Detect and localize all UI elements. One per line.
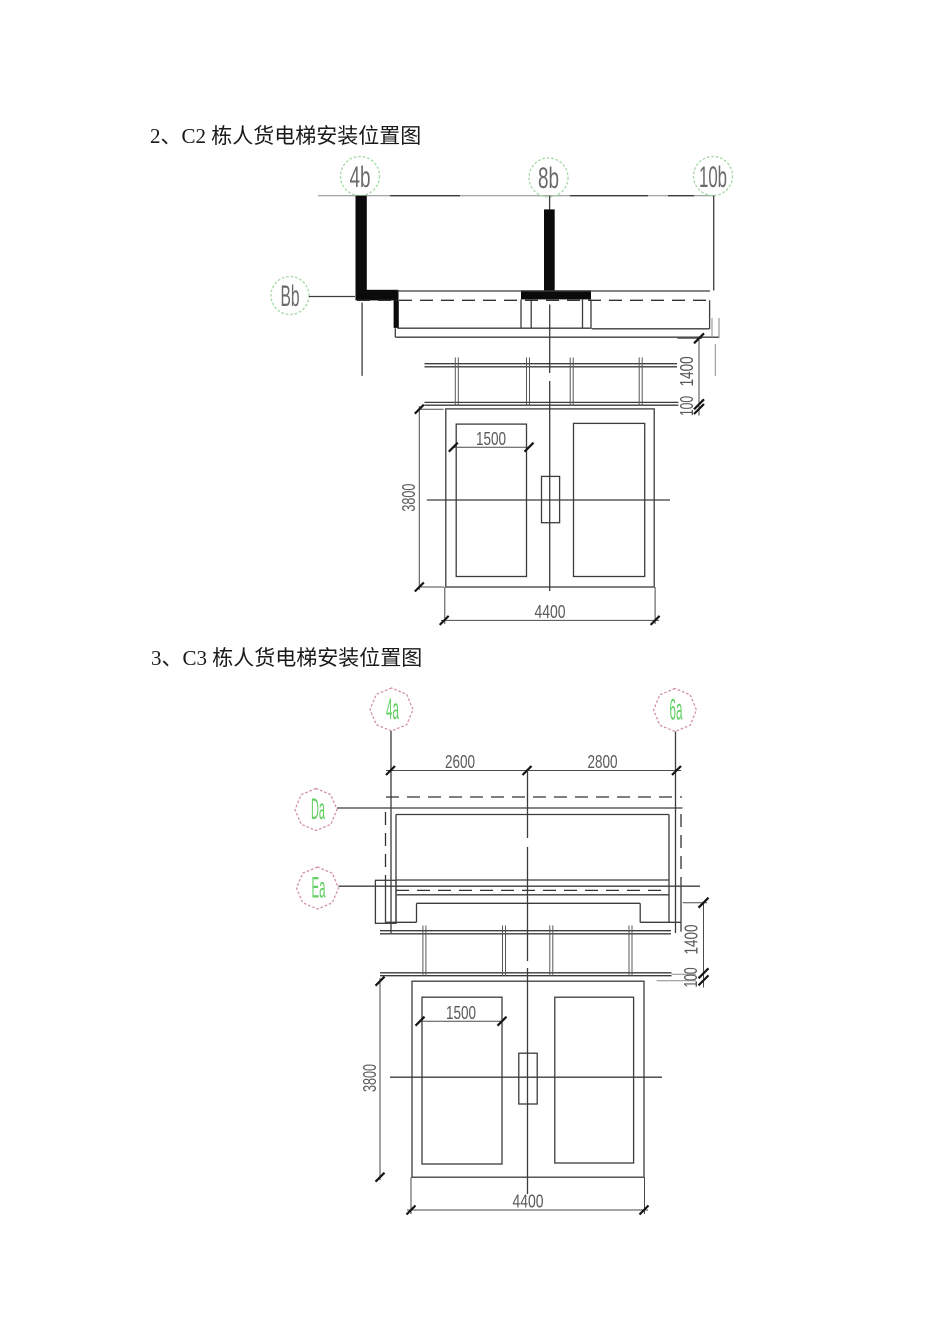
svg-text:Bb: Bb xyxy=(281,280,300,313)
svg-text:10b: 10b xyxy=(699,161,727,194)
svg-text:4b: 4b xyxy=(350,161,371,194)
svg-text:Ea: Ea xyxy=(312,872,326,905)
svg-text:1500: 1500 xyxy=(476,429,506,449)
svg-text:6a: 6a xyxy=(670,694,683,727)
svg-text:1500: 1500 xyxy=(446,1003,476,1023)
svg-text:2、C2 栋人货电梯安装位置图: 2、C2 栋人货电梯安装位置图 xyxy=(150,124,421,148)
svg-text:3、C3 栋人货电梯安装位置图: 3、C3 栋人货电梯安装位置图 xyxy=(151,646,422,670)
svg-text:100: 100 xyxy=(677,396,697,416)
svg-text:2600: 2600 xyxy=(445,752,475,772)
svg-text:8b: 8b xyxy=(538,162,559,195)
svg-text:1400: 1400 xyxy=(677,356,697,386)
svg-text:2800: 2800 xyxy=(588,752,618,772)
svg-text:1400: 1400 xyxy=(681,925,701,955)
svg-text:Da: Da xyxy=(311,793,325,826)
svg-text:4400: 4400 xyxy=(513,1192,544,1212)
svg-text:100: 100 xyxy=(681,968,701,988)
svg-text:3800: 3800 xyxy=(399,484,419,512)
svg-text:4400: 4400 xyxy=(535,602,566,622)
svg-text:4a: 4a xyxy=(386,693,399,726)
svg-text:3800: 3800 xyxy=(360,1064,380,1092)
